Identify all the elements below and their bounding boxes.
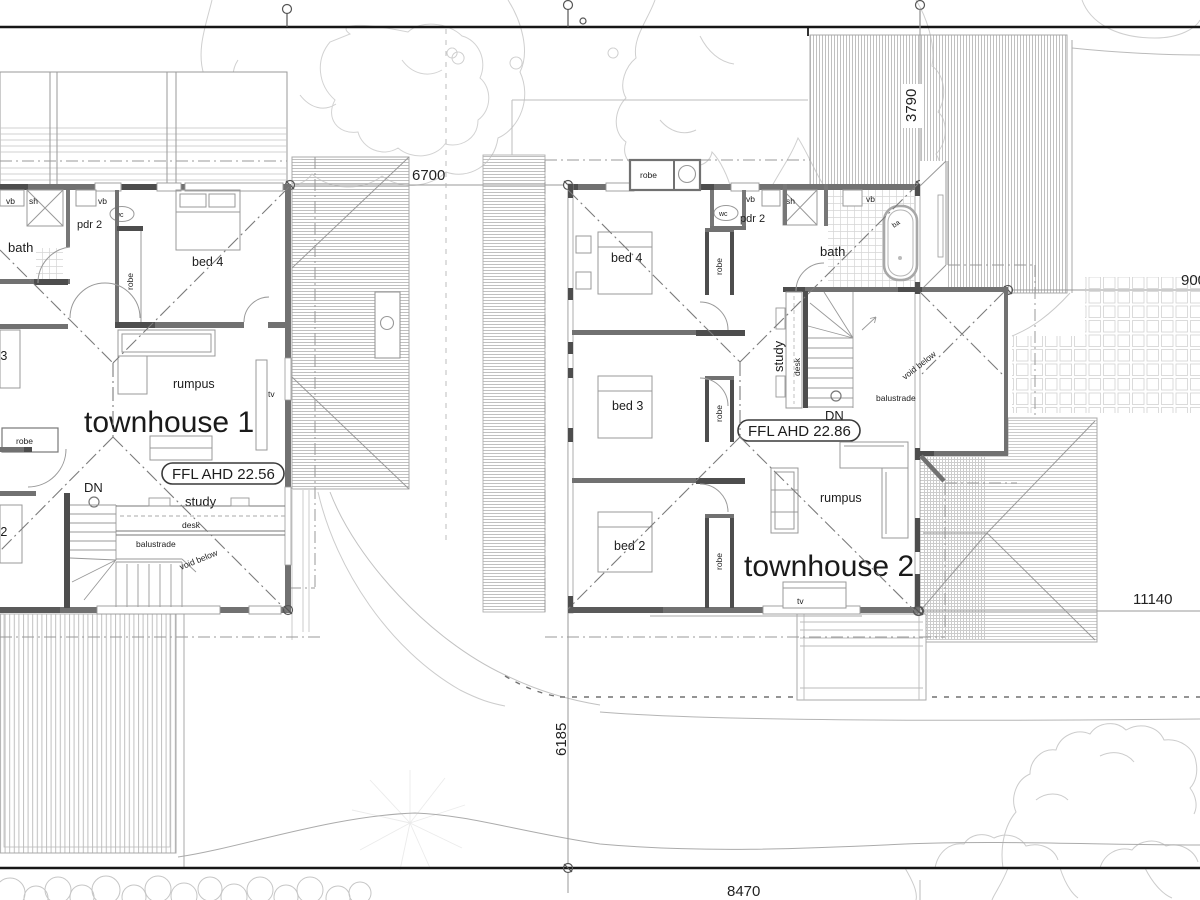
svg-text:vb: vb (6, 196, 15, 206)
svg-text:tv: tv (268, 389, 275, 399)
svg-text:bed 4: bed 4 (611, 251, 642, 265)
svg-text:11140: 11140 (1133, 591, 1173, 608)
svg-text:bath: bath (8, 240, 33, 255)
svg-text:pdr 2: pdr 2 (740, 213, 765, 225)
svg-text:rumpus: rumpus (820, 491, 862, 505)
svg-text:9000: 9000 (1181, 272, 1200, 289)
svg-text:robe: robe (714, 553, 724, 570)
svg-text:desk: desk (182, 520, 201, 530)
svg-text:bed 3: bed 3 (612, 399, 643, 413)
svg-text:8470: 8470 (727, 883, 760, 900)
svg-text:pdr 2: pdr 2 (77, 219, 102, 231)
svg-text:vb: vb (746, 194, 755, 204)
svg-text:wc: wc (718, 211, 728, 218)
svg-text:sh: sh (29, 196, 38, 206)
svg-text:robe: robe (714, 405, 724, 422)
svg-text:study: study (185, 494, 217, 509)
svg-text:sh: sh (786, 196, 795, 206)
svg-text:desk: desk (792, 357, 802, 376)
svg-text:FFL AHD 22.56: FFL AHD 22.56 (172, 466, 275, 483)
svg-text:townhouse 2: townhouse 2 (744, 550, 914, 583)
svg-text:robe: robe (125, 273, 135, 290)
svg-text:bed 2: bed 2 (614, 539, 645, 553)
svg-text:vb: vb (98, 196, 107, 206)
svg-text:DN: DN (84, 480, 103, 495)
svg-text:bed 2: bed 2 (0, 525, 7, 539)
svg-text:balustrade: balustrade (876, 393, 916, 403)
svg-text:rumpus: rumpus (173, 377, 215, 391)
svg-text:robe: robe (640, 170, 657, 180)
svg-text:tv: tv (797, 596, 804, 606)
svg-text:bath: bath (820, 244, 845, 259)
svg-text:6185: 6185 (553, 723, 570, 756)
svg-text:balustrade: balustrade (136, 539, 176, 549)
svg-text:bed 3: bed 3 (0, 349, 7, 363)
svg-text:robe: robe (16, 436, 33, 446)
svg-text:6700: 6700 (412, 167, 445, 184)
svg-text:townhouse 1: townhouse 1 (84, 406, 254, 439)
svg-text:vb: vb (866, 194, 875, 204)
svg-text:robe: robe (714, 258, 724, 275)
svg-text:FFL AHD 22.86: FFL AHD 22.86 (748, 423, 851, 440)
svg-text:3790: 3790 (903, 89, 920, 122)
svg-text:study: study (771, 340, 786, 372)
